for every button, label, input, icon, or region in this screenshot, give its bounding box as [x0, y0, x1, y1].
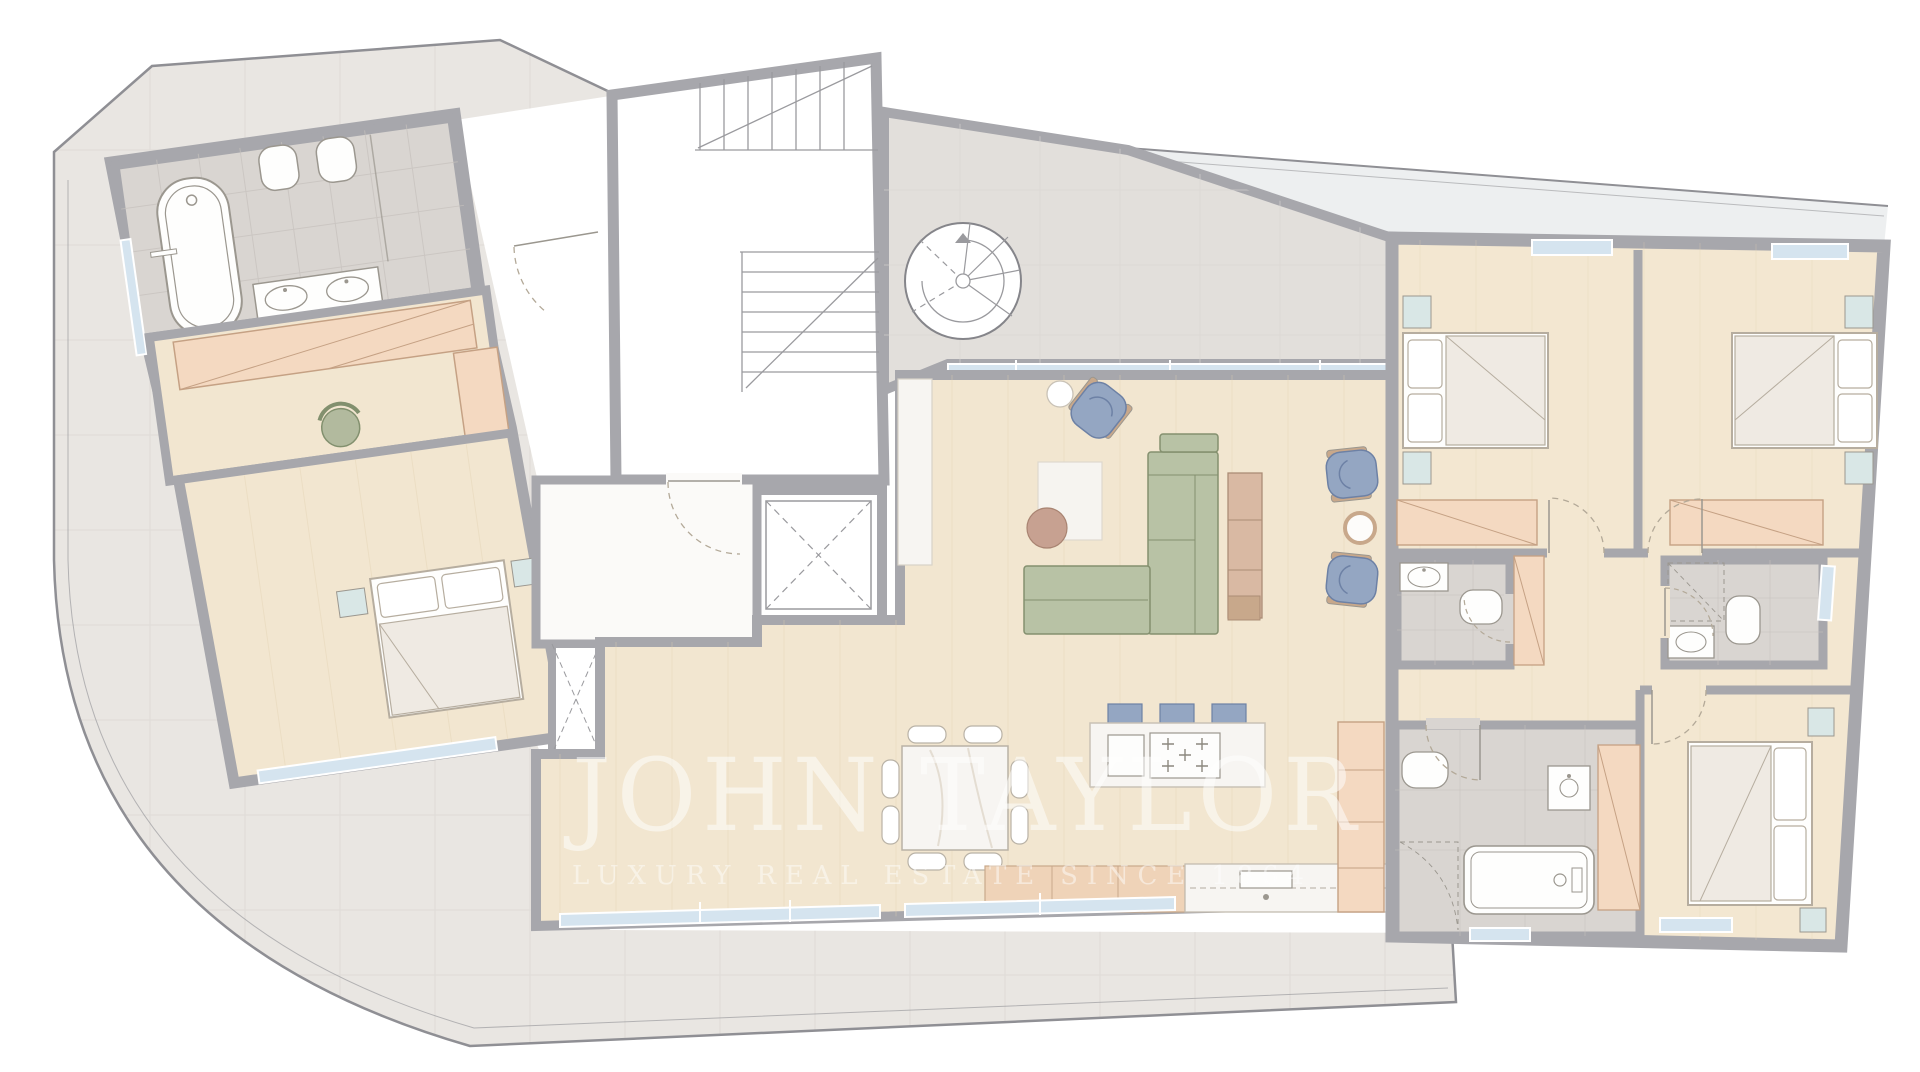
window — [1818, 566, 1835, 621]
ensuite-bathroom-2 — [1660, 560, 1835, 665]
watermark-tagline: LUXURY REAL ESTATE SINCE 1864 — [572, 861, 1312, 891]
marble-floor-strip — [898, 379, 932, 565]
bar-stool-icon — [1108, 704, 1142, 723]
double-bed-icon — [1403, 333, 1548, 448]
master-bedroom — [179, 431, 566, 788]
double-bed-icon — [1688, 742, 1812, 905]
side-table-icon — [1228, 596, 1260, 620]
nightstand-icon — [1808, 708, 1834, 736]
nightstand-icon — [337, 588, 368, 618]
north-terrace — [884, 100, 1392, 400]
bathtub-icon — [1464, 846, 1594, 914]
wardrobe-icon — [1598, 745, 1640, 910]
washbasin-icon — [1400, 563, 1448, 591]
elevator-icon — [755, 490, 882, 620]
nightstand-icon — [1800, 908, 1826, 932]
window — [1470, 928, 1530, 941]
double-bed-icon — [1732, 333, 1877, 448]
armchair-icon — [1324, 551, 1379, 608]
entry-hall — [536, 473, 757, 644]
washbasin-icon — [1548, 766, 1590, 810]
window — [1660, 918, 1732, 932]
double-bed-icon — [370, 560, 523, 717]
bar-stool-icon — [1212, 704, 1246, 723]
nightstand-icon — [1403, 296, 1431, 328]
watermark-brand: JOHN TAYLOR — [563, 737, 1362, 854]
night-wing — [1392, 238, 1884, 946]
bar-stool-icon — [1160, 704, 1194, 723]
window — [1772, 244, 1848, 259]
window — [1532, 240, 1612, 255]
wardrobe-icon — [1670, 500, 1823, 545]
wardrobe-icon — [1397, 500, 1537, 545]
floorplan-page: JOHN TAYLOR LUXURY REAL ESTATE SINCE 186… — [0, 0, 1920, 1072]
nightstand-icon — [1845, 296, 1873, 328]
spiral-staircase-icon — [905, 223, 1021, 339]
coffee-table-icon — [1027, 508, 1067, 548]
toilet-icon — [1726, 596, 1760, 644]
side-table-icon — [1047, 381, 1073, 407]
armchair-icon — [1324, 446, 1379, 503]
nightstand-icon — [1403, 452, 1431, 484]
side-table-icon — [1345, 513, 1375, 543]
toilet-icon — [1460, 590, 1502, 624]
nightstand-icon — [1845, 452, 1873, 484]
watermark: JOHN TAYLOR LUXURY REAL ESTATE SINCE 186… — [563, 737, 1362, 891]
toilet-icon — [1402, 752, 1448, 788]
ensuite-bathroom-1 — [1397, 560, 1514, 665]
floorplan-drawing: JOHN TAYLOR LUXURY REAL ESTATE SINCE 186… — [0, 0, 1920, 1072]
washbasin-icon — [1668, 626, 1714, 658]
